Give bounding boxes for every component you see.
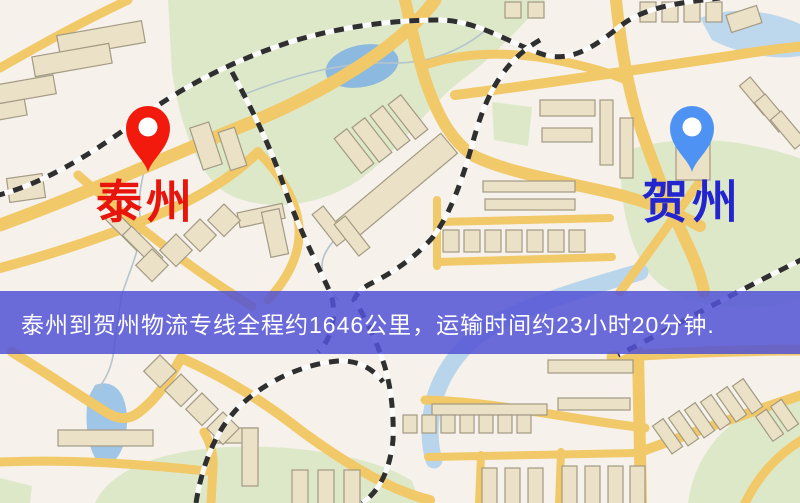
- map-screenshot: 泰州 贺州 泰州到贺州物流专线全程约1646公里，运输时间约23小时20分钟.: [0, 0, 800, 503]
- route-info-banner: 泰州到贺州物流专线全程约1646公里，运输时间约23小时20分钟.: [0, 291, 800, 354]
- map-canvas: [0, 0, 800, 503]
- origin-pin-hole: [139, 118, 158, 137]
- route-info-text: 泰州到贺州物流专线全程约1646公里，运输时间约23小时20分钟.: [21, 306, 715, 340]
- destination-city-label: 贺州: [632, 180, 752, 226]
- origin-city-label: 泰州: [86, 180, 206, 226]
- destination-pin-hole: [683, 118, 702, 137]
